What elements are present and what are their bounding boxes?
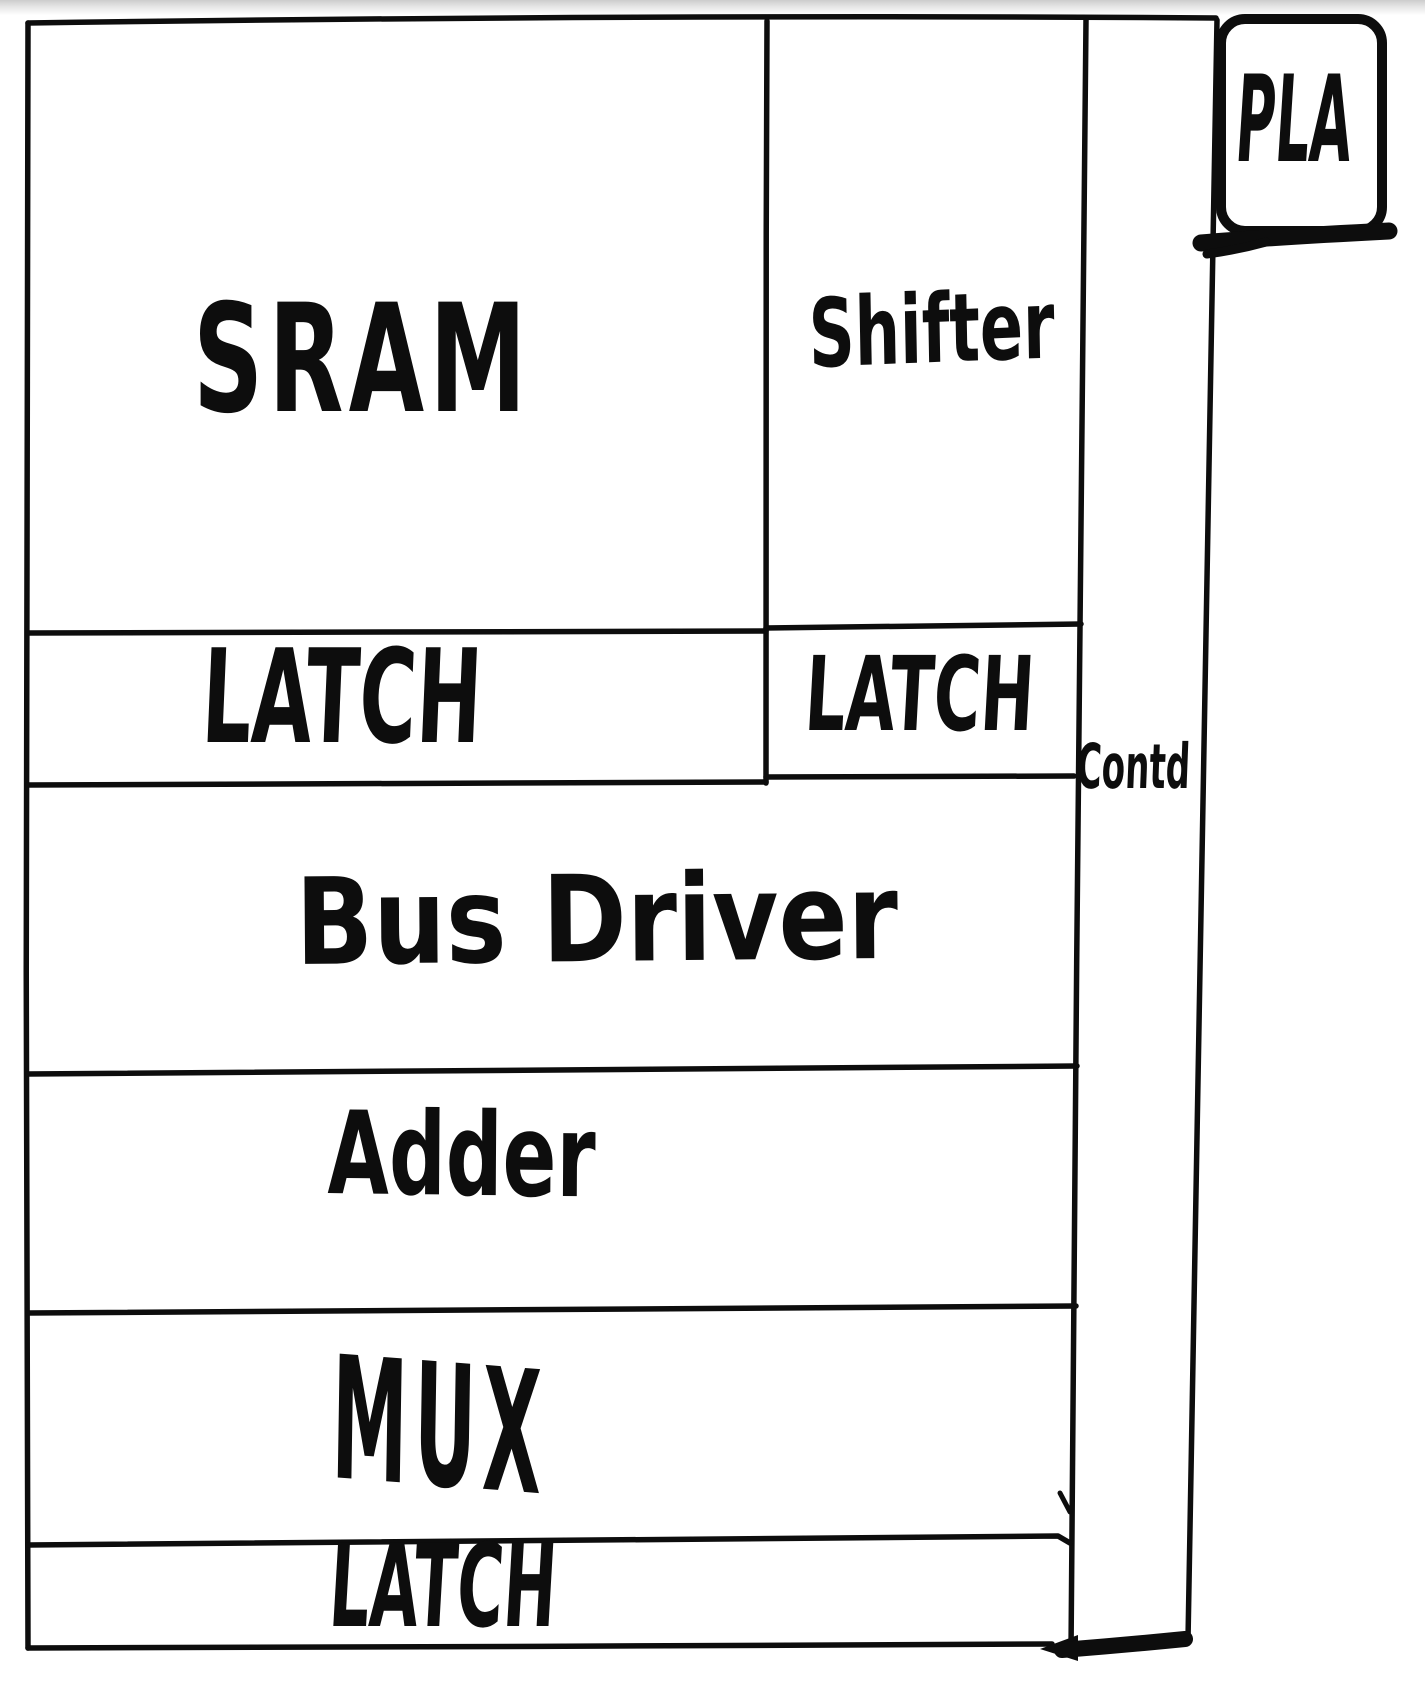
pla-bottom-swoosh bbox=[1201, 231, 1389, 243]
block-label-latch-bottom: LATCH bbox=[326, 1530, 559, 1645]
divider-latchright-busdriver bbox=[766, 776, 1074, 777]
block-label-latch-right: LATCH bbox=[802, 644, 1037, 747]
divider-latchleft-busdriver bbox=[28, 782, 766, 785]
block-label-adder: Adder bbox=[327, 1097, 596, 1215]
pen-flick bbox=[1060, 1493, 1070, 1512]
control-strip-bottom-stroke bbox=[1062, 1639, 1185, 1650]
block-label-mux: MUX bbox=[330, 1334, 549, 1521]
divider-adder-mux bbox=[28, 1306, 1076, 1313]
block-label-pla: PLA bbox=[1232, 61, 1355, 181]
divider-busdriver-adder bbox=[28, 1066, 1077, 1074]
divider-sram-shifter bbox=[766, 21, 767, 783]
control-strip-right-edge bbox=[1188, 20, 1217, 1640]
block-label-control: Contd bbox=[1076, 736, 1192, 798]
divider-shifter-latch bbox=[766, 624, 1081, 628]
border-top bbox=[28, 17, 1216, 23]
block-label-shifter: Shifter bbox=[808, 278, 1055, 383]
block-label-bus-driver: Bus Driver bbox=[295, 858, 898, 984]
floorplan-lines bbox=[0, 0, 1425, 1688]
floorplan-sketch: SRAM Shifter LATCH LATCH Bus Driver Adde… bbox=[0, 0, 1425, 1688]
border-left bbox=[26, 23, 28, 1648]
block-label-latch-left: LATCH bbox=[200, 632, 485, 762]
control-strip-left-edge bbox=[1071, 20, 1086, 1652]
block-label-sram: SRAM bbox=[193, 285, 532, 435]
